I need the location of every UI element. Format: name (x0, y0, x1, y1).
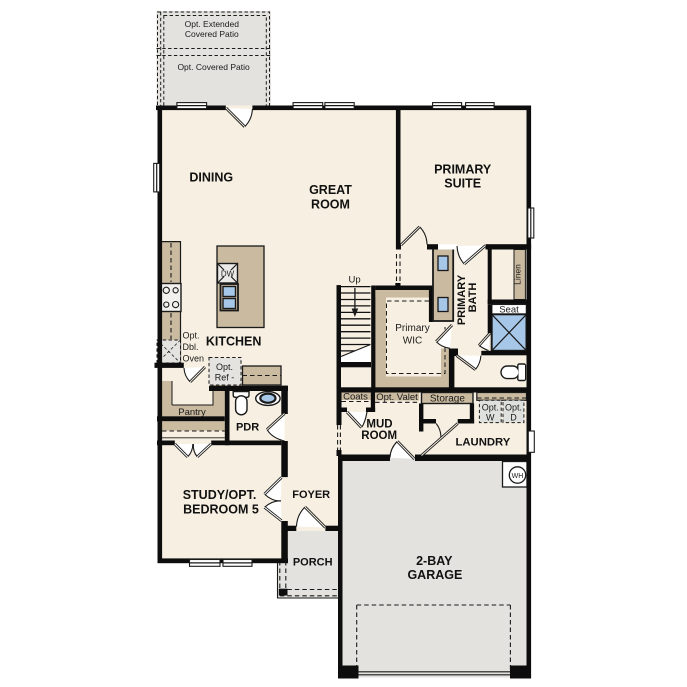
svg-text:Ref -: Ref - (215, 373, 235, 383)
svg-text:2-BAY: 2-BAY (416, 554, 453, 568)
svg-text:GARAGE: GARAGE (407, 568, 462, 582)
svg-text:PDR: PDR (236, 422, 259, 434)
svg-text:Coats: Coats (343, 391, 368, 402)
svg-text:WH: WH (512, 473, 524, 480)
svg-text:Opt. Extended: Opt. Extended (185, 19, 240, 29)
svg-text:PORCH: PORCH (293, 556, 333, 568)
svg-text:Opt.: Opt. (482, 403, 499, 413)
svg-text:WIC: WIC (403, 336, 422, 347)
svg-text:STUDY/OPT.: STUDY/OPT. (183, 488, 257, 502)
svg-text:PRIMARY: PRIMARY (456, 274, 468, 325)
svg-text:Covered Patio: Covered Patio (185, 29, 239, 39)
svg-text:W: W (486, 413, 495, 423)
svg-text:Opt.: Opt. (216, 362, 233, 372)
svg-text:Primary: Primary (395, 323, 429, 334)
svg-text:Opt.: Opt. (183, 331, 200, 341)
svg-text:FOYER: FOYER (292, 489, 330, 501)
svg-text:PRIMARY: PRIMARY (434, 162, 492, 176)
svg-text:Storage: Storage (430, 394, 465, 405)
svg-text:Linen: Linen (513, 264, 523, 285)
svg-text:Opt. Valet: Opt. Valet (376, 392, 418, 403)
svg-text:Oven: Oven (183, 354, 205, 364)
svg-text:ROOM: ROOM (361, 430, 397, 442)
svg-text:BATH: BATH (467, 283, 479, 313)
svg-text:Dbl.: Dbl. (183, 342, 199, 352)
svg-text:KITCHEN: KITCHEN (206, 334, 262, 348)
svg-text:MUD: MUD (366, 419, 392, 431)
svg-text:ROOM: ROOM (311, 198, 350, 212)
svg-text:BEDROOM 5: BEDROOM 5 (183, 503, 259, 517)
svg-text:Opt.: Opt. (505, 403, 522, 413)
svg-text:LAUNDRY: LAUNDRY (455, 437, 510, 449)
svg-text:Opt. Covered Patio: Opt. Covered Patio (177, 62, 250, 72)
svg-text:Up: Up (349, 275, 361, 286)
svg-text:D: D (510, 413, 517, 423)
svg-text:DINING: DINING (189, 170, 233, 184)
svg-text:GREAT: GREAT (309, 183, 352, 197)
svg-text:DW: DW (221, 270, 235, 279)
svg-text:SUITE: SUITE (444, 176, 481, 190)
